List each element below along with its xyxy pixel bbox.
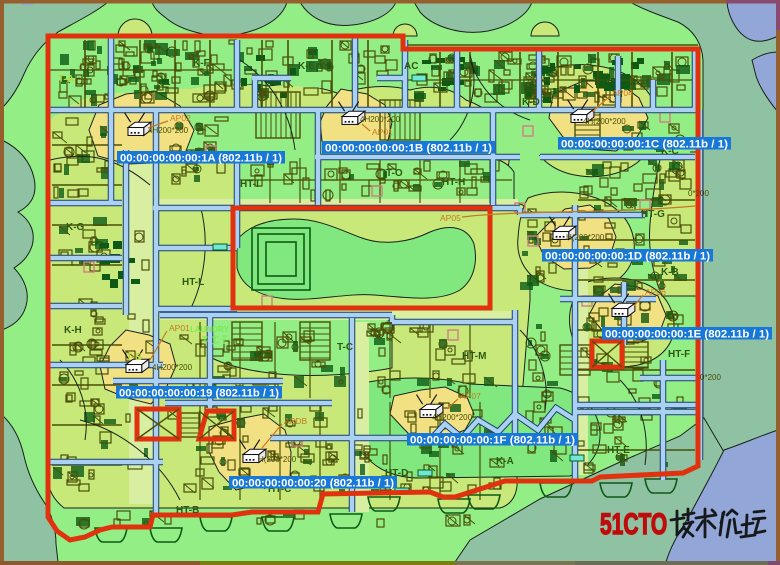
svg-text:4H200*200: 4H200*200 — [152, 363, 193, 372]
svg-text:00:00:00:00:00:1D (802.11b / 1: 00:00:00:00:00:1D (802.11b / 1) — [545, 251, 710, 263]
svg-text:4H200*200: 4H200*200 — [360, 115, 401, 124]
svg-text:HT-F: HT-F — [668, 349, 690, 360]
svg-text:HT-E: HT-E — [607, 445, 630, 456]
svg-text:AP06: AP06 — [645, 287, 666, 297]
svg-text:HT-B: HT-B — [176, 505, 199, 516]
svg-text:K-E: K-E — [298, 61, 316, 72]
svg-text:0*200: 0*200 — [700, 373, 721, 382]
svg-text:AC: AC — [404, 61, 418, 72]
svg-text:K-B: K-B — [661, 267, 679, 278]
svg-text:H(200*200: H(200*200 — [566, 233, 605, 242]
svg-text:00:00:00:00:00:20 (802.11b / 1: 00:00:00:00:00:20 (802.11b / 1) — [232, 478, 394, 490]
svg-text:K-D: K-D — [522, 97, 540, 108]
svg-text:00:00:00:00:00:1C (802.11b / 1: 00:00:00:00:00:1C (802.11b / 1) — [561, 139, 728, 151]
svg-text:APDB: APDB — [284, 416, 307, 426]
svg-text:HT-I: HT-I — [240, 179, 259, 190]
svg-text:00:00:00:00:00:19 (802.11b / 1: 00:00:00:00:00:19 (802.11b / 1) — [119, 388, 279, 400]
svg-text:00:00:00:00:00:1A (802.11b / 1: 00:00:00:00:00:1A (802.11b / 1) — [120, 153, 282, 165]
svg-text:00:00:00:00:00:1F (802.11b / 1: 00:00:00:00:00:1F (802.11b / 1) — [410, 435, 575, 447]
svg-text:K-H: K-H — [64, 325, 82, 336]
svg-text:AP01: AP01 — [372, 127, 393, 137]
svg-text:51CTO: 51CTO — [600, 509, 667, 541]
svg-text:LAUNDRY: LAUNDRY — [190, 325, 229, 334]
svg-text:0*200: 0*200 — [688, 189, 709, 198]
svg-text:4H(200*200: 4H(200*200 — [583, 117, 626, 126]
svg-text:HT-G: HT-G — [641, 209, 665, 220]
svg-text:K-F: K-F — [193, 58, 210, 69]
svg-text:T-O: T-O — [386, 168, 403, 179]
svg-text:00:00:00:00:00:1E (802.11b / 1: 00:00:00:00:00:1E (802.11b / 1) — [605, 329, 769, 341]
svg-text:K-A: K-A — [496, 456, 514, 467]
svg-text:T-A: T-A — [58, 74, 74, 85]
svg-text:AP07: AP07 — [460, 391, 481, 401]
svg-text:AP05: AP05 — [440, 213, 461, 223]
svg-text:AP04: AP04 — [612, 88, 633, 98]
svg-text:T-B: T-B — [126, 352, 142, 363]
svg-text:H(200*200: H(200*200 — [258, 455, 297, 464]
svg-text:HT-M: HT-M — [462, 351, 486, 362]
svg-text:4H200*200: 4H200*200 — [148, 126, 189, 135]
svg-text:4H200*200: 4H200*200 — [432, 413, 473, 422]
svg-text:AP01: AP01 — [169, 323, 190, 333]
svg-text:00:00:00:00:00:1B (802.11b / 1: 00:00:00:00:00:1B (802.11b / 1) — [325, 143, 492, 155]
svg-text:T-C: T-C — [337, 342, 353, 353]
svg-text:AP02: AP02 — [170, 113, 191, 123]
svg-text:HT-L: HT-L — [182, 277, 204, 288]
svg-text:K-G: K-G — [66, 222, 85, 233]
svg-text:HT-H: HT-H — [442, 177, 465, 188]
